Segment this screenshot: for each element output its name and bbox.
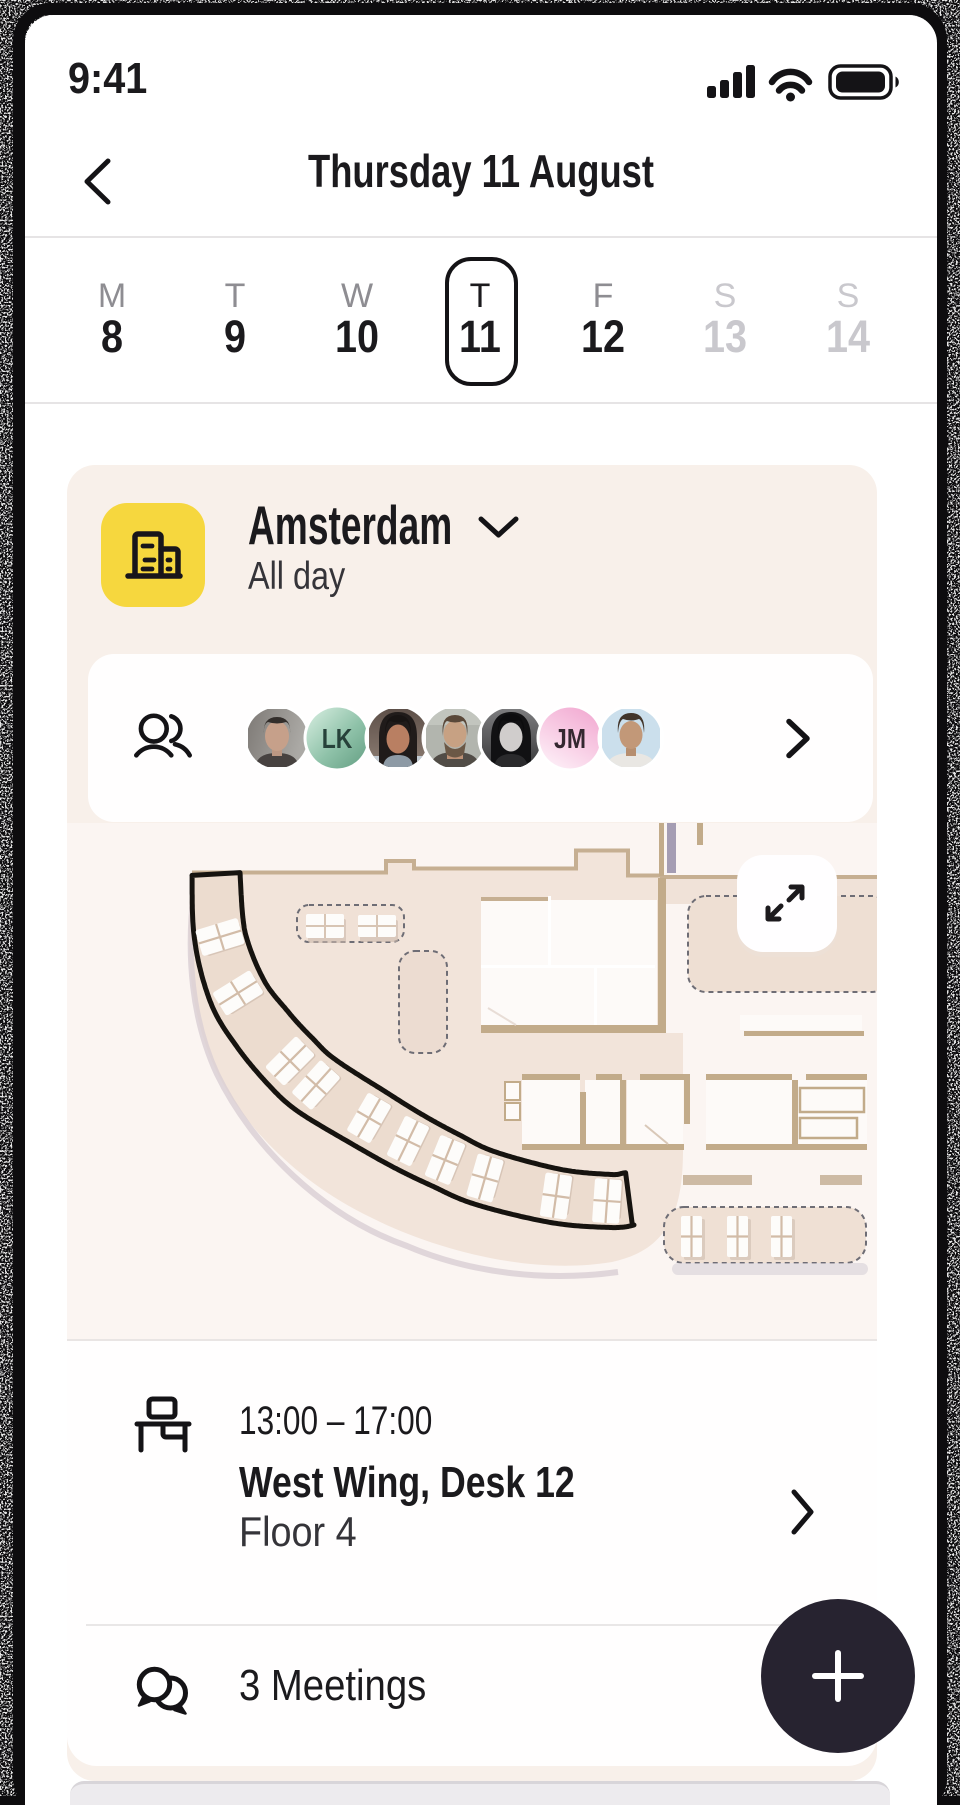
svg-text:LK: LK	[322, 724, 353, 755]
svg-text:JM: JM	[554, 724, 586, 755]
